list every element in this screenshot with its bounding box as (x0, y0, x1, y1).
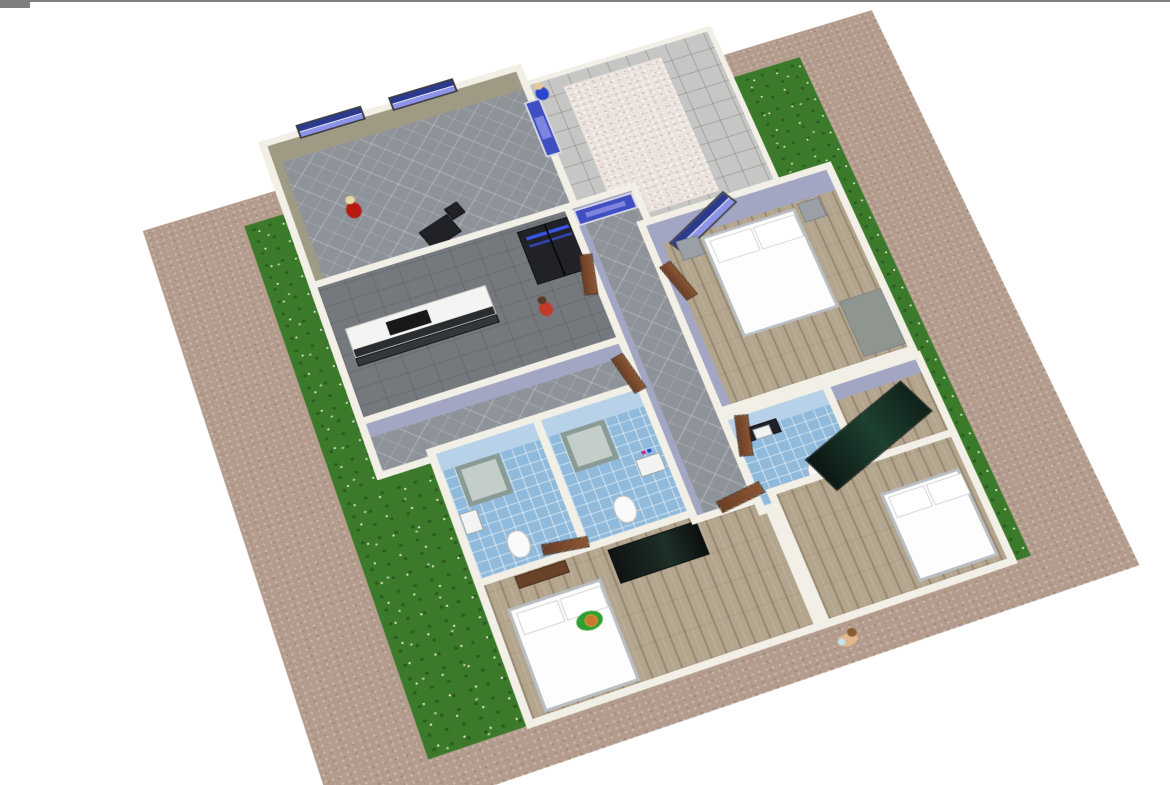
living-room-wall-face (267, 72, 523, 165)
bed-pillow (888, 485, 933, 518)
bed-pillow (753, 214, 804, 249)
3d-view-canvas[interactable] (0, 2, 1170, 785)
house-plan-3d (0, 2, 1170, 785)
bed-pillow (516, 600, 565, 636)
terrace-door-panel (534, 116, 551, 139)
bed-pillow (709, 228, 761, 263)
